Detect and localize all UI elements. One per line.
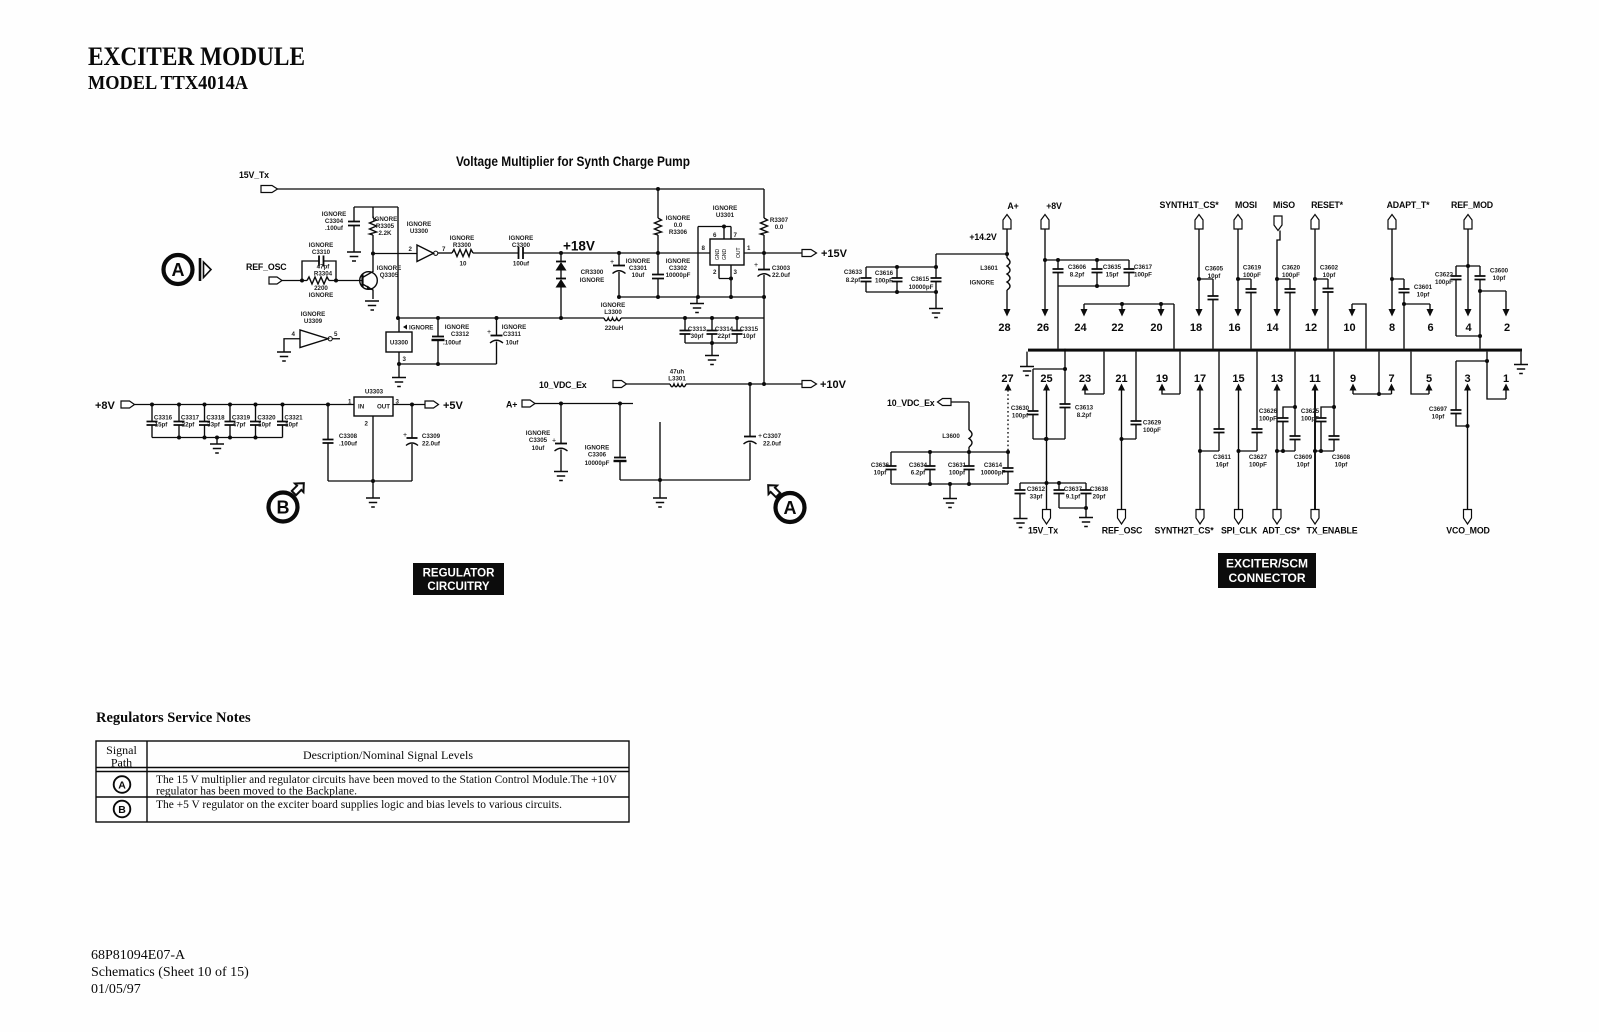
svg-text:C3697: C3697 (1429, 406, 1448, 413)
svg-text:C3612: C3612 (1027, 486, 1046, 493)
svg-text:A: A (118, 780, 126, 792)
svg-text:C3600: C3600 (1490, 268, 1509, 275)
svg-text:10pf: 10pf (1417, 292, 1431, 299)
svg-text:SYNTH1T_CS*: SYNTH1T_CS* (1160, 200, 1220, 210)
svg-text:C3613: C3613 (1075, 405, 1094, 412)
svg-text:26: 26 (1037, 322, 1049, 334)
svg-text:IN: IN (358, 404, 365, 411)
svg-text:L3300: L3300 (604, 309, 622, 316)
svg-text:1: 1 (348, 399, 352, 406)
svg-text:C3617: C3617 (1134, 264, 1153, 271)
svg-text:10pf: 10pf (1335, 462, 1349, 469)
svg-text:C3627: C3627 (1249, 454, 1268, 461)
svg-text:IGNORE: IGNORE (450, 235, 474, 242)
svg-text:15pf: 15pf (1106, 272, 1120, 279)
svg-text:23: 23 (1079, 373, 1091, 385)
svg-text:C3315: C3315 (740, 326, 759, 333)
svg-text:11: 11 (1309, 373, 1321, 385)
svg-text:C3634: C3634 (909, 462, 928, 469)
svg-text:10pf: 10pf (285, 422, 299, 429)
svg-text:L3600: L3600 (942, 433, 960, 440)
svg-text:A+: A+ (1007, 201, 1018, 211)
svg-text:L3301: L3301 (668, 376, 686, 383)
svg-text:7: 7 (442, 246, 446, 253)
svg-text:22: 22 (1111, 322, 1123, 334)
svg-text:10uf: 10uf (532, 445, 546, 452)
svg-text:A+: A+ (506, 400, 517, 410)
svg-text:15pf: 15pf (155, 422, 169, 429)
svg-text:30pf: 30pf (691, 333, 705, 340)
svg-text:IGNORE: IGNORE (713, 205, 737, 212)
svg-text:10pf: 10pf (258, 422, 272, 429)
svg-text:C3300: C3300 (512, 242, 531, 249)
svg-text:Path: Path (111, 756, 132, 770)
svg-text:10_VDC_Ex: 10_VDC_Ex (887, 398, 935, 408)
svg-text:C3608: C3608 (1332, 454, 1351, 461)
svg-text:Schematics (Sheet 10 of 15): Schematics (Sheet 10 of 15) (91, 965, 249, 980)
svg-text:C3633: C3633 (844, 269, 863, 276)
svg-text:ADT_CS*: ADT_CS* (1262, 526, 1300, 536)
svg-text:ADAPT_T*: ADAPT_T* (1387, 200, 1431, 210)
svg-text:C3626: C3626 (1259, 408, 1278, 415)
svg-text:1: 1 (1503, 373, 1509, 385)
svg-text:C3630: C3630 (1011, 405, 1030, 412)
svg-text:C3305: C3305 (529, 437, 548, 444)
svg-text:R3305: R3305 (376, 223, 395, 230)
svg-text:B: B (277, 498, 290, 518)
svg-text:6: 6 (713, 232, 717, 239)
svg-text:10000pF: 10000pF (666, 272, 691, 279)
svg-text:13: 13 (1271, 373, 1283, 385)
svg-text:18: 18 (1190, 322, 1202, 334)
svg-text:0.0: 0.0 (775, 224, 784, 231)
svg-text:R3307: R3307 (770, 217, 789, 224)
svg-text:+: + (610, 259, 614, 266)
svg-text:IGNORE: IGNORE (580, 277, 604, 284)
svg-text:Q3305: Q3305 (380, 272, 399, 279)
svg-text:IGNORE: IGNORE (409, 325, 433, 332)
svg-text:SYNTH2T_CS*: SYNTH2T_CS* (1155, 526, 1215, 536)
svg-text:IGNORE: IGNORE (601, 302, 625, 309)
svg-text:+18V: +18V (563, 239, 595, 254)
svg-text:IGNORE: IGNORE (445, 324, 469, 331)
svg-text:6: 6 (1427, 322, 1433, 334)
svg-text:100pF: 100pF (1259, 416, 1277, 423)
svg-text:C3307: C3307 (763, 433, 782, 440)
svg-text:20: 20 (1150, 322, 1162, 334)
svg-text:VCO_MOD: VCO_MOD (1446, 526, 1489, 536)
svg-text:EXCITER MODULE: EXCITER MODULE (88, 42, 305, 71)
svg-text:7: 7 (1388, 373, 1394, 385)
svg-text:2.2K: 2.2K (378, 230, 392, 237)
svg-text:C3637: C3637 (1064, 486, 1083, 493)
svg-text:U3300: U3300 (390, 340, 409, 347)
svg-text:C3003: C3003 (772, 265, 791, 272)
svg-text:C3310: C3310 (312, 249, 331, 256)
svg-text:C3623: C3623 (1435, 272, 1454, 279)
svg-text:CONNECTOR: CONNECTOR (1228, 571, 1305, 585)
svg-text:8.2pf: 8.2pf (846, 277, 861, 284)
svg-text:+10V: +10V (820, 379, 847, 391)
svg-text:10: 10 (1343, 322, 1355, 334)
svg-text:IGNORE: IGNORE (309, 292, 333, 299)
svg-text:9.1pf: 9.1pf (1066, 494, 1081, 501)
svg-text:C3316: C3316 (154, 415, 173, 422)
svg-text:15: 15 (1232, 373, 1244, 385)
svg-text:C3635: C3635 (1103, 264, 1122, 271)
svg-text:R3300: R3300 (453, 242, 472, 249)
svg-text:5: 5 (334, 331, 338, 338)
svg-text:C3606: C3606 (1068, 264, 1087, 271)
svg-text:C3636: C3636 (871, 462, 890, 469)
svg-text:5: 5 (1426, 373, 1432, 385)
svg-text:10uf: 10uf (632, 272, 646, 279)
svg-text:2200: 2200 (314, 285, 328, 292)
svg-text:CR3300: CR3300 (581, 269, 604, 276)
svg-text:22pf: 22pf (718, 333, 732, 340)
svg-text:REGULATOR: REGULATOR (423, 568, 495, 580)
svg-text:C3312: C3312 (451, 331, 470, 338)
svg-text:100pF: 100pF (1243, 272, 1261, 279)
svg-text:C3611: C3611 (1213, 454, 1231, 461)
svg-text:10pf: 10pf (1297, 462, 1311, 469)
svg-text:C3629: C3629 (1143, 420, 1162, 427)
svg-text:220uH: 220uH (605, 325, 624, 332)
svg-text:C3308: C3308 (339, 433, 358, 440)
svg-text:TX_ENABLE: TX_ENABLE (1307, 526, 1358, 536)
svg-text:IGNORE: IGNORE (373, 216, 397, 223)
svg-text:REF_MOD: REF_MOD (1451, 200, 1493, 210)
svg-text:The +5 V regulator on the exci: The +5 V regulator on the exciter board … (156, 799, 562, 811)
svg-text:10pf: 10pf (874, 470, 888, 477)
svg-text:+15V: +15V (821, 248, 848, 260)
svg-text:10pf: 10pf (1208, 273, 1222, 280)
svg-text:IGNORE: IGNORE (322, 211, 346, 218)
svg-text:C3619: C3619 (1243, 265, 1262, 272)
svg-text:C3311: C3311 (503, 331, 521, 338)
svg-text:IGNORE: IGNORE (585, 445, 609, 452)
svg-text:C3601: C3601 (1414, 284, 1433, 291)
svg-text:R3306: R3306 (669, 229, 688, 236)
svg-text:+14.2V: +14.2V (969, 232, 997, 242)
svg-text:.100uf: .100uf (339, 441, 358, 448)
svg-text:100pF: 100pF (875, 278, 893, 285)
svg-text:R3304: R3304 (314, 271, 333, 278)
svg-text:22pf: 22pf (182, 422, 196, 429)
svg-text:C3620: C3620 (1282, 265, 1301, 272)
svg-text:C3313: C3313 (688, 326, 707, 333)
svg-text:100pF: 100pF (1435, 279, 1453, 286)
svg-text:IGNORE: IGNORE (666, 215, 690, 222)
svg-text:+8V: +8V (1046, 201, 1062, 211)
svg-text:100uf: 100uf (513, 261, 530, 268)
svg-text:2: 2 (409, 246, 413, 253)
svg-text:10: 10 (460, 261, 467, 268)
svg-text:0.0: 0.0 (674, 222, 683, 229)
svg-text:Description/Nominal Signal Lev: Description/Nominal Signal Levels (303, 748, 473, 762)
svg-text:REF_OSC: REF_OSC (246, 262, 287, 272)
svg-text:IGNORE: IGNORE (301, 311, 325, 318)
svg-text:IGNORE: IGNORE (407, 221, 431, 228)
svg-text:C3320: C3320 (257, 415, 276, 422)
svg-text:GND: GND (715, 249, 721, 261)
svg-text:IGNORE: IGNORE (970, 280, 994, 287)
svg-text:8: 8 (702, 245, 706, 252)
svg-text:1: 1 (747, 245, 751, 252)
svg-text:IGNORE: IGNORE (502, 324, 526, 331)
svg-text:01/05/97: 01/05/97 (91, 982, 141, 997)
svg-text:Voltage Multiplier for Synth C: Voltage Multiplier for Synth Charge Pump (456, 154, 690, 169)
svg-text:3: 3 (734, 269, 738, 276)
svg-text:.100uf: .100uf (443, 340, 462, 347)
svg-text:U3300: U3300 (410, 228, 429, 235)
svg-text:IGNORE: IGNORE (526, 430, 550, 437)
svg-text:+8V: +8V (95, 400, 116, 412)
svg-text:17: 17 (1194, 373, 1206, 385)
svg-text:C3302: C3302 (669, 265, 688, 272)
svg-text:12: 12 (1305, 322, 1317, 334)
svg-text:IGNORE: IGNORE (309, 242, 333, 249)
svg-text:RESET*: RESET* (1311, 200, 1344, 210)
svg-text:EXCITER/SCM: EXCITER/SCM (1226, 557, 1308, 571)
svg-text:4: 4 (1465, 322, 1472, 334)
svg-text:C3625: C3625 (1301, 408, 1320, 415)
svg-text:C3309: C3309 (422, 433, 441, 440)
svg-text:U3309: U3309 (304, 318, 323, 325)
svg-text:6.2pf: 6.2pf (911, 470, 926, 477)
svg-text:C3602: C3602 (1320, 265, 1339, 272)
svg-text:+: + (403, 432, 407, 439)
svg-text:3: 3 (1464, 373, 1470, 385)
svg-text:8.2pf: 8.2pf (1070, 272, 1085, 279)
svg-text:C3605: C3605 (1205, 266, 1224, 273)
svg-text:24: 24 (1074, 322, 1087, 334)
svg-text:C3319: C3319 (232, 415, 251, 422)
svg-text:2: 2 (1504, 322, 1510, 334)
svg-text:2: 2 (713, 269, 717, 276)
svg-text:C3314: C3314 (715, 326, 734, 333)
svg-text:25: 25 (1040, 373, 1052, 385)
svg-text:100pf: 100pf (949, 470, 966, 477)
svg-text:28: 28 (998, 322, 1010, 334)
svg-text:B: B (118, 804, 126, 816)
svg-text:21: 21 (1115, 373, 1127, 385)
svg-text:A: A (784, 498, 797, 518)
svg-text:8: 8 (1389, 322, 1395, 334)
svg-text:100pF: 100pF (1134, 272, 1152, 279)
svg-text:MOSI: MOSI (1235, 200, 1257, 210)
svg-text:16pf: 16pf (1216, 462, 1230, 469)
svg-text:47uh: 47uh (670, 369, 685, 376)
svg-text:10000pF: 10000pF (585, 460, 610, 467)
svg-text:+: + (487, 329, 491, 336)
svg-text:10pf: 10pf (1493, 275, 1507, 282)
svg-text:100pf: 100pf (1012, 413, 1029, 420)
svg-text:47pf: 47pf (233, 422, 247, 429)
svg-text:33pf: 33pf (207, 422, 221, 429)
svg-text:+: + (552, 438, 556, 445)
svg-text:.100uf: .100uf (325, 225, 344, 232)
svg-text:IGNORE: IGNORE (666, 258, 690, 265)
svg-text:C3616: C3616 (875, 270, 894, 277)
svg-text:C3631: C3631 (948, 462, 967, 469)
svg-text:MiSO: MiSO (1273, 200, 1295, 210)
svg-text:C3317: C3317 (181, 415, 200, 422)
svg-text:4: 4 (292, 331, 296, 338)
svg-text:U3303: U3303 (365, 389, 384, 396)
svg-text:2: 2 (365, 421, 369, 428)
svg-text:22.0uf: 22.0uf (772, 272, 791, 279)
svg-text:10pf: 10pf (743, 333, 757, 340)
svg-text:10pf: 10pf (1432, 414, 1446, 421)
svg-text:100pF: 100pF (1301, 416, 1319, 423)
svg-text:regulator has been moved to th: regulator has been moved to the Backplan… (156, 786, 357, 798)
svg-text:Regulators Service Notes: Regulators Service Notes (96, 710, 251, 726)
svg-text:22.0uf: 22.0uf (422, 441, 441, 448)
svg-text:OUT: OUT (736, 247, 742, 258)
svg-text:9: 9 (1350, 373, 1356, 385)
svg-text:10000pF: 10000pF (981, 470, 1006, 477)
svg-text:OUT: OUT (377, 404, 390, 411)
svg-text:GND: GND (722, 249, 728, 261)
svg-text:C3301: C3301 (629, 265, 648, 272)
svg-text:14: 14 (1266, 322, 1279, 334)
svg-text:C3306: C3306 (588, 452, 607, 459)
svg-text:19: 19 (1156, 373, 1168, 385)
svg-text:REF_OSC: REF_OSC (1102, 526, 1143, 536)
svg-text:10uf: 10uf (506, 340, 520, 347)
svg-text:+: + (758, 433, 762, 440)
svg-text:7: 7 (734, 232, 738, 239)
svg-text:IGNORE: IGNORE (626, 258, 650, 265)
svg-text:A: A (172, 260, 185, 280)
svg-text:SPI_CLK: SPI_CLK (1221, 526, 1258, 536)
svg-text:10pf: 10pf (1323, 272, 1337, 279)
svg-text:MODEL TTX4014A: MODEL TTX4014A (88, 73, 248, 94)
svg-text:The 15 V multiplier and regula: The 15 V multiplier and regulator circui… (156, 774, 618, 786)
svg-text:+: + (754, 262, 758, 269)
svg-text:L3601: L3601 (980, 265, 998, 272)
svg-text:U3301: U3301 (716, 212, 735, 219)
svg-text:C3638: C3638 (1090, 486, 1109, 493)
svg-text:100pF: 100pF (1249, 462, 1267, 469)
svg-text:IGNORE: IGNORE (377, 265, 401, 272)
svg-text:20pf: 20pf (1093, 494, 1107, 501)
svg-text:68P81094E07-A: 68P81094E07-A (91, 948, 186, 963)
svg-text:3: 3 (403, 356, 407, 363)
svg-text:16: 16 (1228, 322, 1240, 334)
svg-text:IGNORE: IGNORE (509, 235, 533, 242)
svg-text:C3321: C3321 (284, 415, 303, 422)
svg-text:27: 27 (1001, 373, 1013, 385)
svg-text:100pF: 100pF (1143, 427, 1161, 434)
svg-text:C3304: C3304 (325, 218, 344, 225)
svg-text:10000pF: 10000pF (909, 284, 934, 291)
svg-text:CIRCUITRY: CIRCUITRY (427, 581, 490, 593)
svg-text:C3614: C3614 (984, 462, 1003, 469)
svg-text:+5V: +5V (443, 400, 464, 412)
svg-text:15V_Tx: 15V_Tx (239, 170, 269, 180)
svg-text:C3318: C3318 (206, 415, 225, 422)
svg-text:33pf: 33pf (1030, 494, 1044, 501)
svg-text:C3615: C3615 (911, 276, 930, 283)
svg-text:47pf: 47pf (317, 264, 331, 271)
svg-text:22.0uf: 22.0uf (763, 441, 782, 448)
svg-text:C3609: C3609 (1294, 454, 1313, 461)
svg-text:100pF: 100pF (1282, 272, 1300, 279)
svg-text:15V_Tx: 15V_Tx (1028, 526, 1058, 536)
svg-text:10_VDC_Ex: 10_VDC_Ex (539, 380, 587, 390)
svg-text:8.2pf: 8.2pf (1077, 412, 1092, 419)
